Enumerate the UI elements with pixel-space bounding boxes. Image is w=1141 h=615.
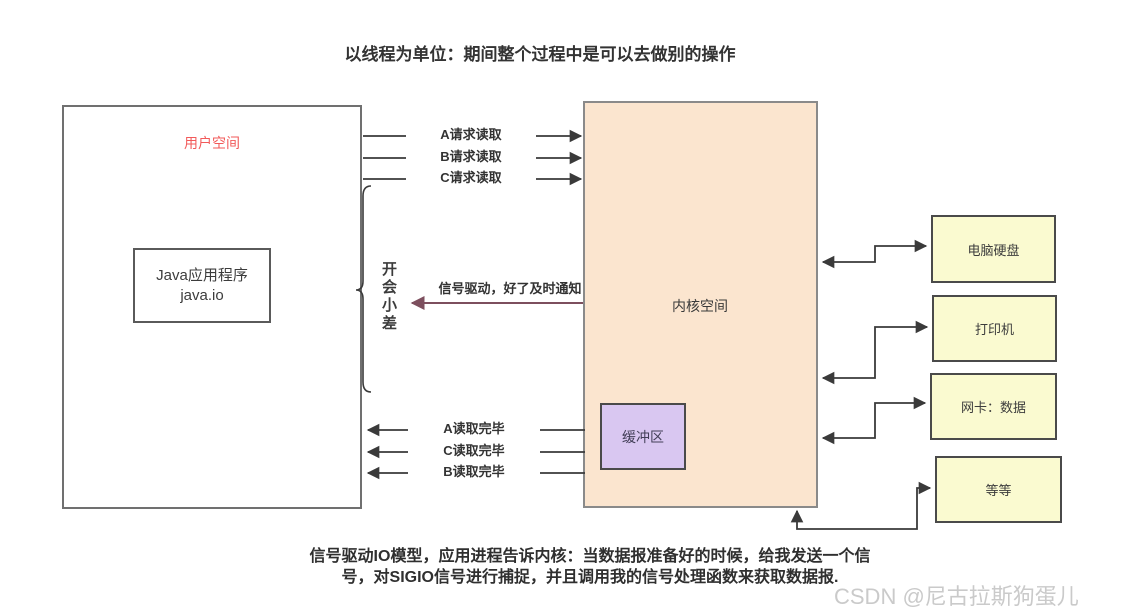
connector-printer xyxy=(823,327,927,378)
caption-line1: 信号驱动IO模型，应用进程告诉内核：当数据报准备好的时候，给我发送一个信 xyxy=(40,546,1140,567)
connector-lines xyxy=(0,0,1141,615)
complete-label-a: A读取完毕 xyxy=(408,421,540,437)
brace-note: 开会小差 xyxy=(378,261,399,333)
user-space-label: 用户空间 xyxy=(62,133,362,153)
brace-shape xyxy=(356,186,371,392)
kernel-space-label: 内核空间 xyxy=(648,296,752,316)
complete-label-c: C读取完毕 xyxy=(408,443,540,459)
watermark: CSDN @尼古拉斯狗蛋儿 xyxy=(834,579,1079,611)
signal-driven-io-diagram: 以线程为单位：期间整个过程中是可以去做别的操作 用户空间 Java应用程序 ja… xyxy=(0,0,1141,615)
complete-label-b: B读取完毕 xyxy=(408,464,540,480)
request-label-a: A请求读取 xyxy=(406,127,536,143)
request-label-b: B请求读取 xyxy=(406,149,536,165)
request-label-c: C请求读取 xyxy=(406,170,536,186)
connector-etc xyxy=(797,488,930,529)
buffer-box: 缓冲区 xyxy=(600,403,686,470)
buffer-label: 缓冲区 xyxy=(622,427,664,447)
connector-disk xyxy=(823,246,926,262)
connector-nic xyxy=(823,403,925,438)
signal-arrow-label: 信号驱动，好了及时通知 xyxy=(420,278,600,297)
diagram-title: 以线程为单位：期间整个过程中是可以去做别的操作 xyxy=(20,40,1060,65)
